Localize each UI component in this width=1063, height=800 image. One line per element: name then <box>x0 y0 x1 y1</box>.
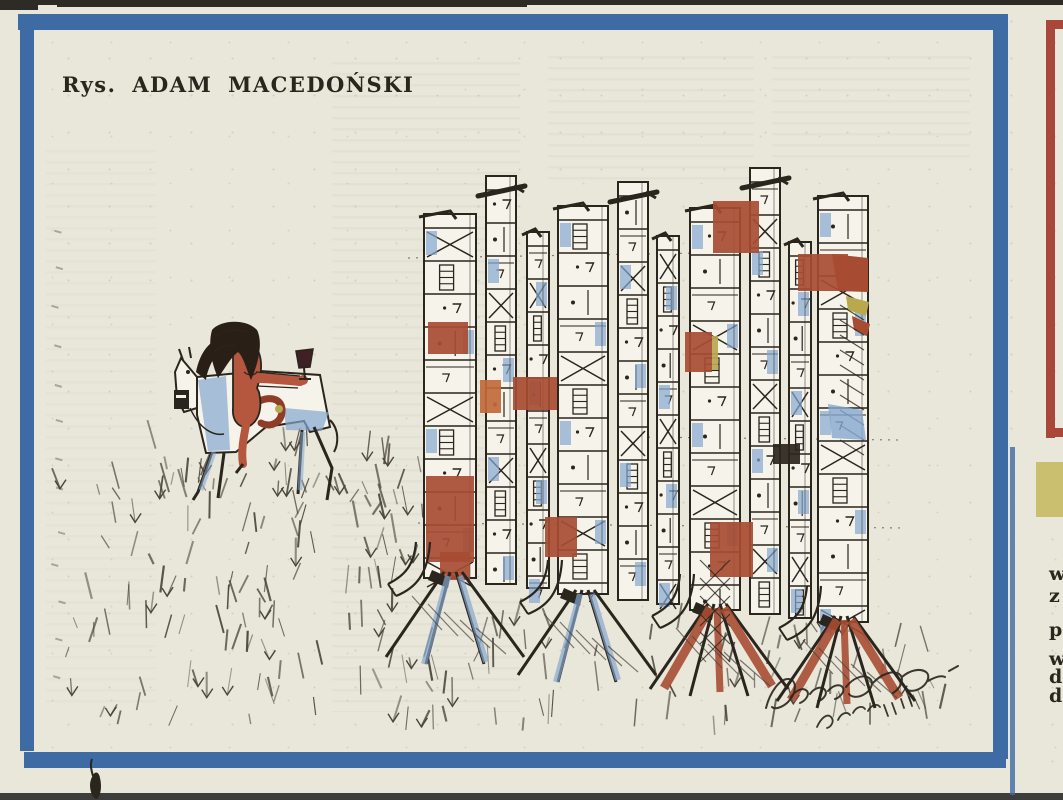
scaffold-towers <box>419 168 870 635</box>
adjacent-column-yellow-mark <box>1036 462 1063 517</box>
horse-and-rider <box>174 322 337 500</box>
scanned-page: Rys. ADAM MACEDOŃSKI w z p w d d <box>0 0 1063 800</box>
caption: Rys. ADAM MACEDOŃSKI <box>62 72 414 97</box>
scan-edge-bottom <box>0 793 1063 800</box>
margin-letter: z <box>1049 587 1060 606</box>
margin-letter: d <box>1049 687 1062 706</box>
cartoon-illustration <box>0 0 1063 800</box>
margin-letter: w <box>1049 565 1063 584</box>
margin-letter: p <box>1049 621 1062 640</box>
scan-edge-top <box>0 0 1063 10</box>
adjacent-column-blue-rule <box>1010 447 1015 795</box>
adjacent-column-red-frame <box>1046 20 1063 438</box>
